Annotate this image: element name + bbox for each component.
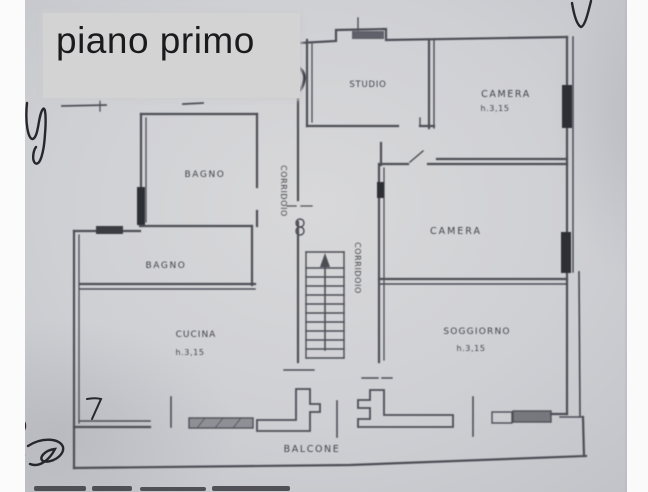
window-soggiorno <box>513 411 551 422</box>
room-label-camera-est: CAMERA <box>430 226 482 237</box>
floor-title: piano primo <box>43 13 300 62</box>
floor-title-overlay: piano primo <box>43 13 300 98</box>
door-mark-camera <box>377 182 384 198</box>
window-bagno-nord <box>137 187 145 225</box>
page-margin-left <box>0 0 25 492</box>
room-label-studio: STUDIO <box>349 80 386 90</box>
room-note-soggiorno: h.3,15 <box>456 344 485 353</box>
window-jog-wall <box>96 226 123 234</box>
room-note-cucina: h.3,15 <box>175 348 204 357</box>
room-label-bagno-ovest: BAGNO <box>146 261 187 271</box>
room-label-camera-nordest: CAMERA <box>481 89 531 100</box>
room-label-bagno-nord: BAGNO <box>185 170 226 180</box>
room-label-cucina: CUCINA <box>176 330 217 340</box>
screenshot-root: STUDIO CAMERA h.3,15 BAGNO CORRIDOIO CAM… <box>0 0 648 492</box>
window-east-camera-nord <box>562 85 572 128</box>
room-label-soggiorno: SOGGIORNO <box>443 327 510 337</box>
window-north <box>352 31 384 39</box>
page-margin-right <box>627 0 648 492</box>
room-label-corridoio-nord: CORRIDOIO <box>279 165 288 217</box>
window-east-camera <box>561 232 571 273</box>
room-label-balcone: BALCONE <box>284 444 341 455</box>
room-note-camera-nordest: h.3,15 <box>480 104 509 113</box>
room-label-corridoio-centrale: CORRIDOIO <box>353 242 362 294</box>
